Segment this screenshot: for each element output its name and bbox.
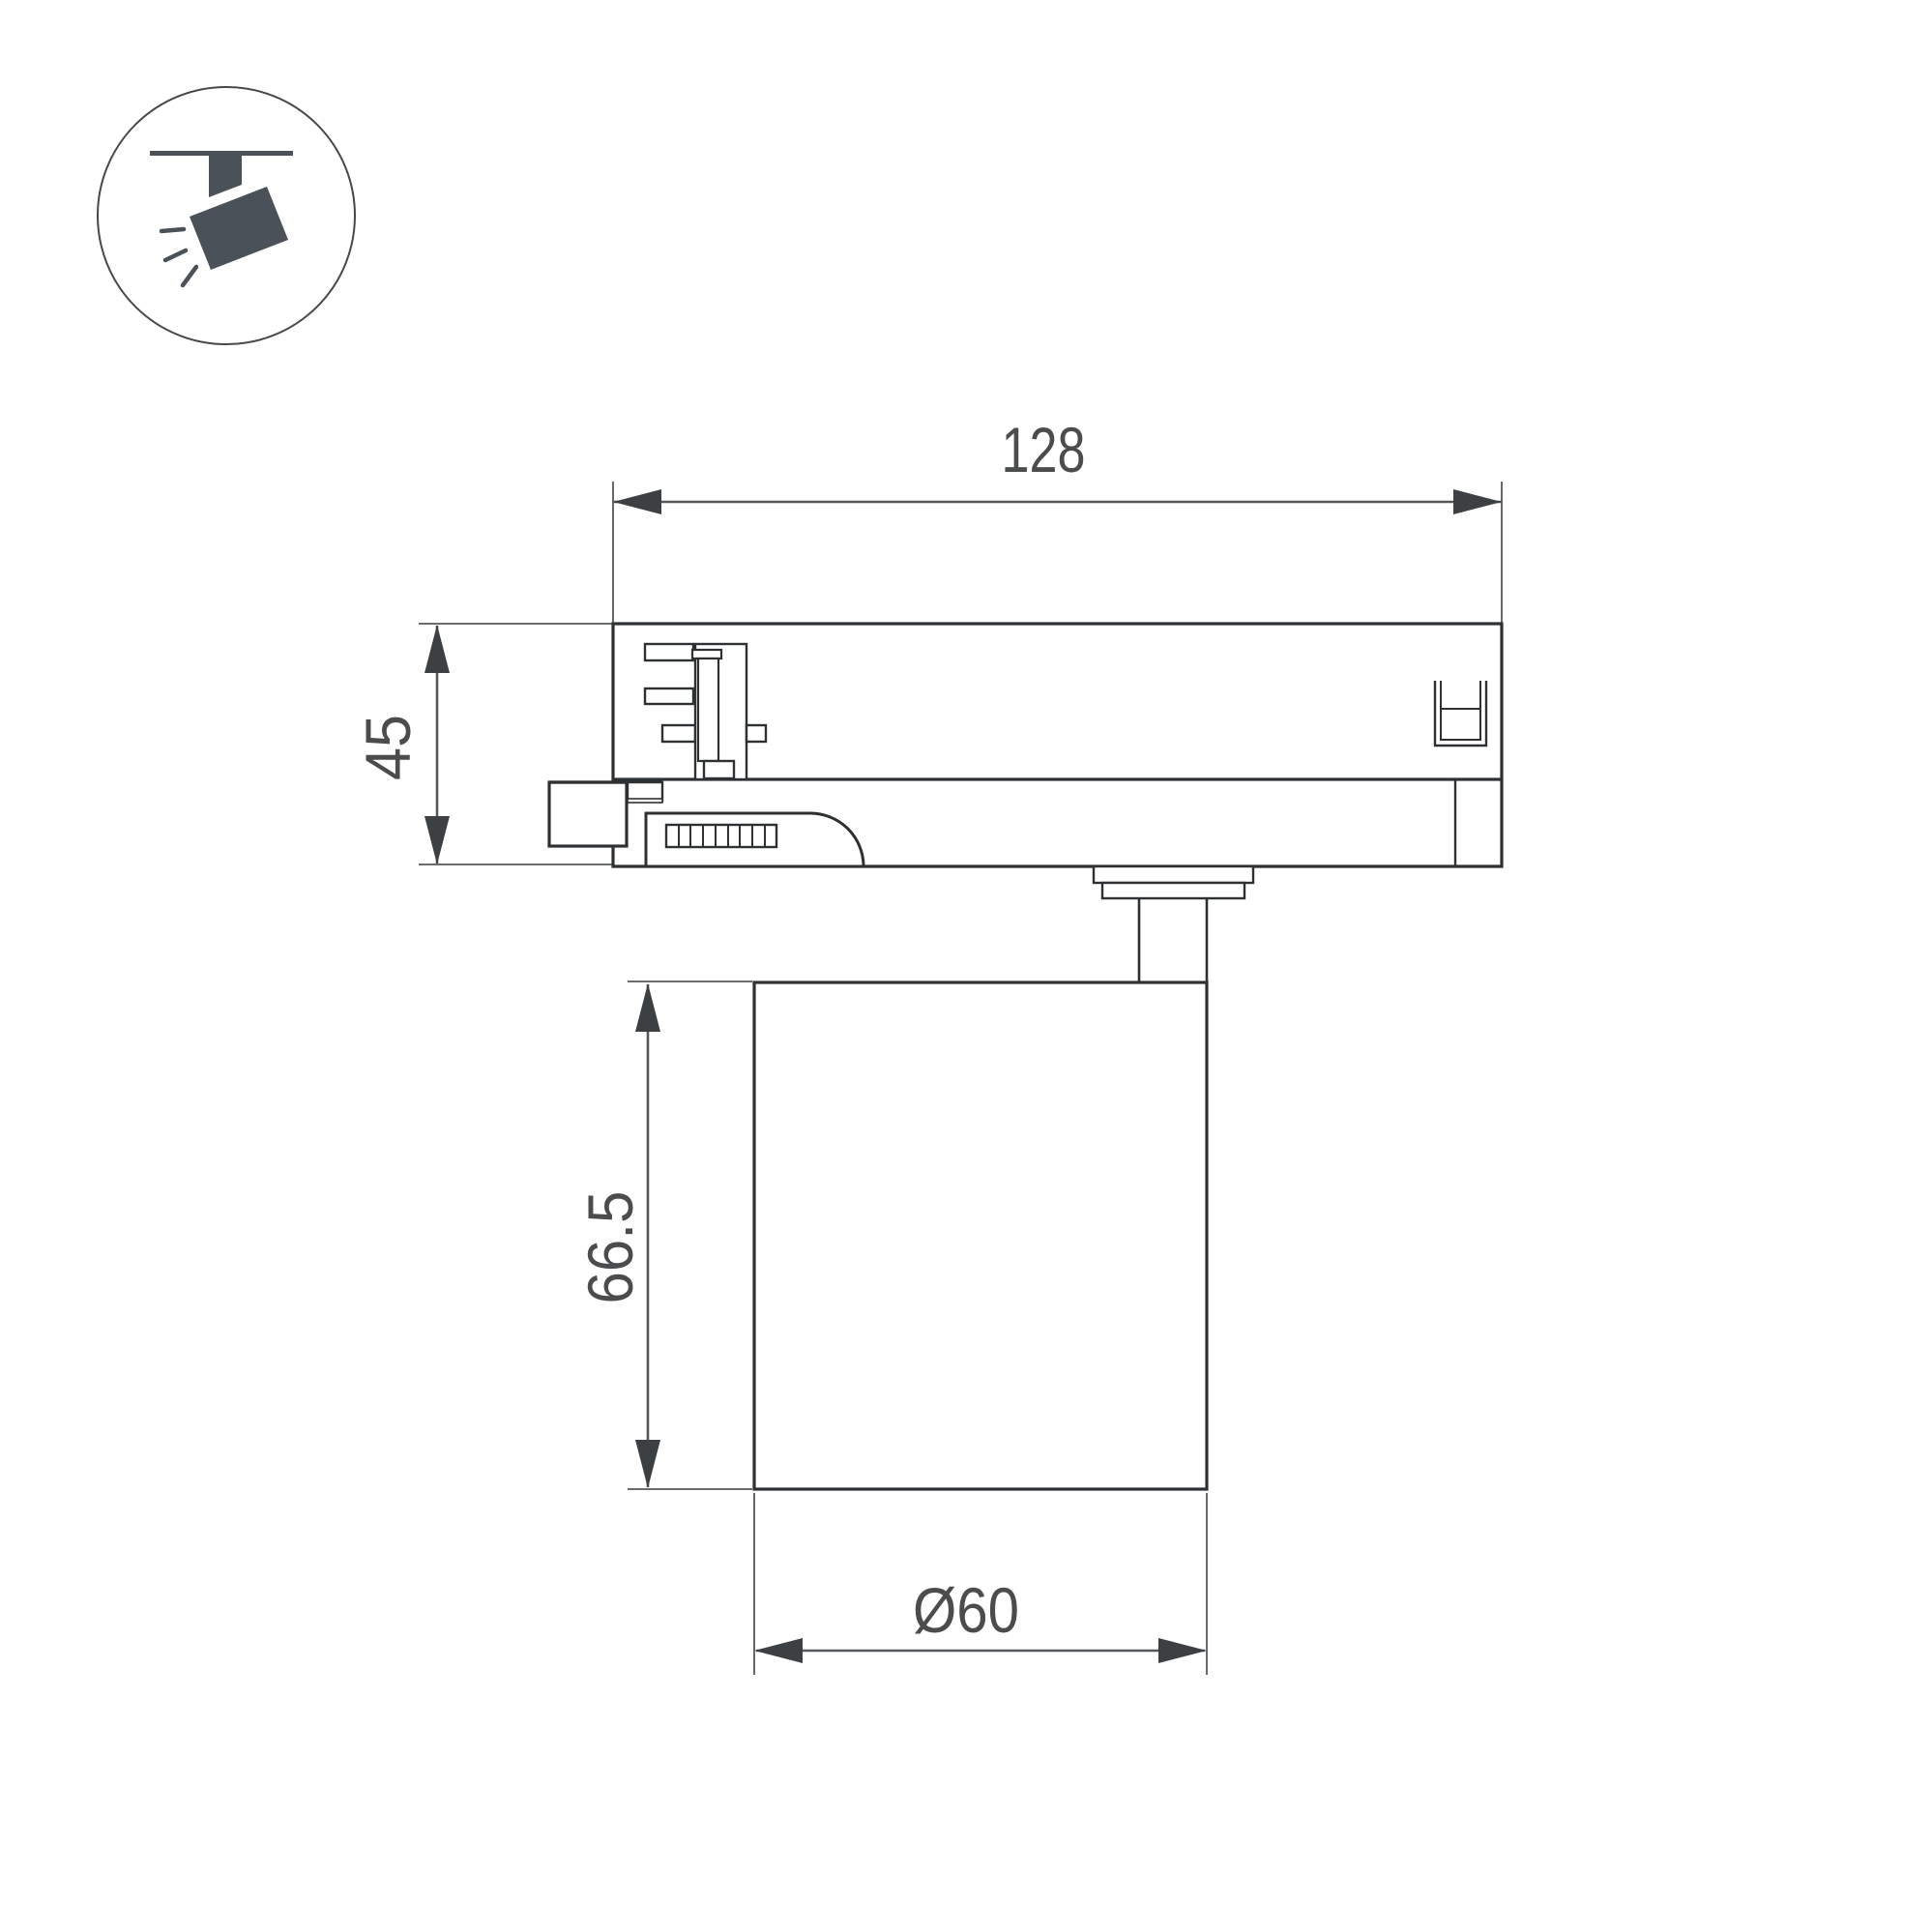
svg-text:128: 128: [1002, 414, 1086, 485]
svg-text:Ø60: Ø60: [913, 1574, 1019, 1646]
svg-text:45: 45: [352, 715, 424, 780]
svg-text:66.5: 66.5: [574, 1191, 646, 1304]
